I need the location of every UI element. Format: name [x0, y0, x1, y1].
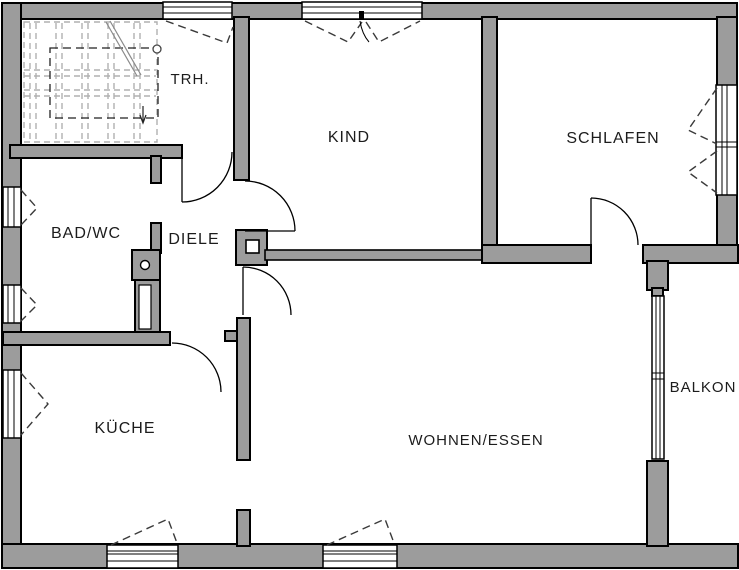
wall-bad-kueche — [3, 332, 170, 345]
floor-plan-svg: TRH. KIND SCHLAFEN BAD/WC DIELE KÜCHE WO… — [0, 0, 739, 570]
shaft-pipe-icon — [141, 261, 150, 270]
window-frame — [3, 370, 21, 438]
floor-plan-page: TRH. KIND SCHLAFEN BAD/WC DIELE KÜCHE WO… — [0, 0, 739, 570]
wall-kueche-wohnen-stub — [237, 510, 250, 546]
window-mullion — [359, 11, 364, 19]
room-label-kind: KIND — [328, 129, 370, 146]
balkon-pier-bottom — [647, 461, 668, 546]
room-label-diele: DIELE — [168, 231, 219, 248]
wall-kind-wohnen — [265, 250, 483, 260]
window-balkon-glazing — [652, 296, 664, 459]
balkon-pier-top — [647, 261, 668, 290]
wall-bad-east-mid — [151, 223, 161, 253]
balkon-pier-top-nub — [652, 288, 663, 296]
window-frame — [3, 285, 21, 323]
wall-kueche-wohnen — [237, 318, 250, 460]
window-frame — [3, 187, 21, 227]
window-frame — [163, 2, 232, 19]
wall-trh-kind — [234, 17, 249, 180]
wall-bad-east-upper-stub — [151, 156, 161, 183]
window-frame — [323, 545, 397, 568]
room-label-kueche: KÜCHE — [94, 419, 155, 437]
room-label-bad-wc: BAD/WC — [51, 225, 121, 242]
plan-background — [0, 0, 739, 570]
wall-kind-schlafen — [482, 17, 497, 262]
junction-duct — [246, 240, 259, 253]
room-label-balkon: BALKON — [670, 379, 737, 396]
window-frame — [652, 296, 664, 459]
wall-junction-block — [236, 230, 267, 265]
room-label-trh: TRH. — [171, 71, 210, 88]
wall-schlafen-south-left — [482, 245, 591, 263]
stair-direction-start-icon — [153, 45, 161, 53]
room-label-schlafen: SCHLAFEN — [566, 130, 659, 147]
installation-shaft-a — [132, 250, 160, 280]
shaft-b-duct — [139, 285, 151, 329]
installation-shaft-b — [135, 280, 160, 333]
room-label-wohnen-essen: WOHNEN/ESSEN — [408, 432, 543, 449]
window-frame — [107, 545, 178, 568]
